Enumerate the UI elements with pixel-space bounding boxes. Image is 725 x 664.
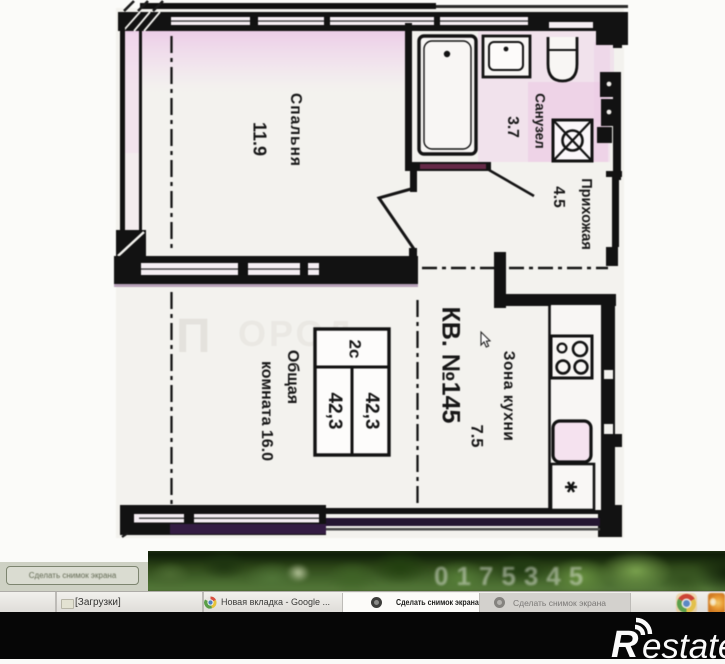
svg-text:R: R xyxy=(611,624,639,659)
svg-text:2с: 2с xyxy=(346,340,365,359)
svg-text:Спальня: Спальня xyxy=(287,93,304,167)
svg-text:11.9: 11.9 xyxy=(249,122,269,156)
svg-text:Общая: Общая xyxy=(284,350,301,404)
svg-text:42,3: 42,3 xyxy=(361,393,382,430)
svg-text:комната 16.0: комната 16.0 xyxy=(258,361,275,461)
svg-text:4.5: 4.5 xyxy=(550,186,567,208)
svg-text:Зона кухни: Зона кухни xyxy=(500,351,517,442)
svg-text:КВ. №145: КВ. №145 xyxy=(436,307,464,424)
svg-text:Санузел: Санузел xyxy=(532,93,547,149)
svg-text:estate: estate xyxy=(642,627,725,659)
svg-text:3.7: 3.7 xyxy=(504,116,521,138)
svg-text:Прихожая: Прихожая xyxy=(578,178,594,250)
svg-text:42,3: 42,3 xyxy=(324,393,345,430)
svg-text:7.5: 7.5 xyxy=(468,425,486,448)
svg-text:П: П xyxy=(176,310,211,363)
